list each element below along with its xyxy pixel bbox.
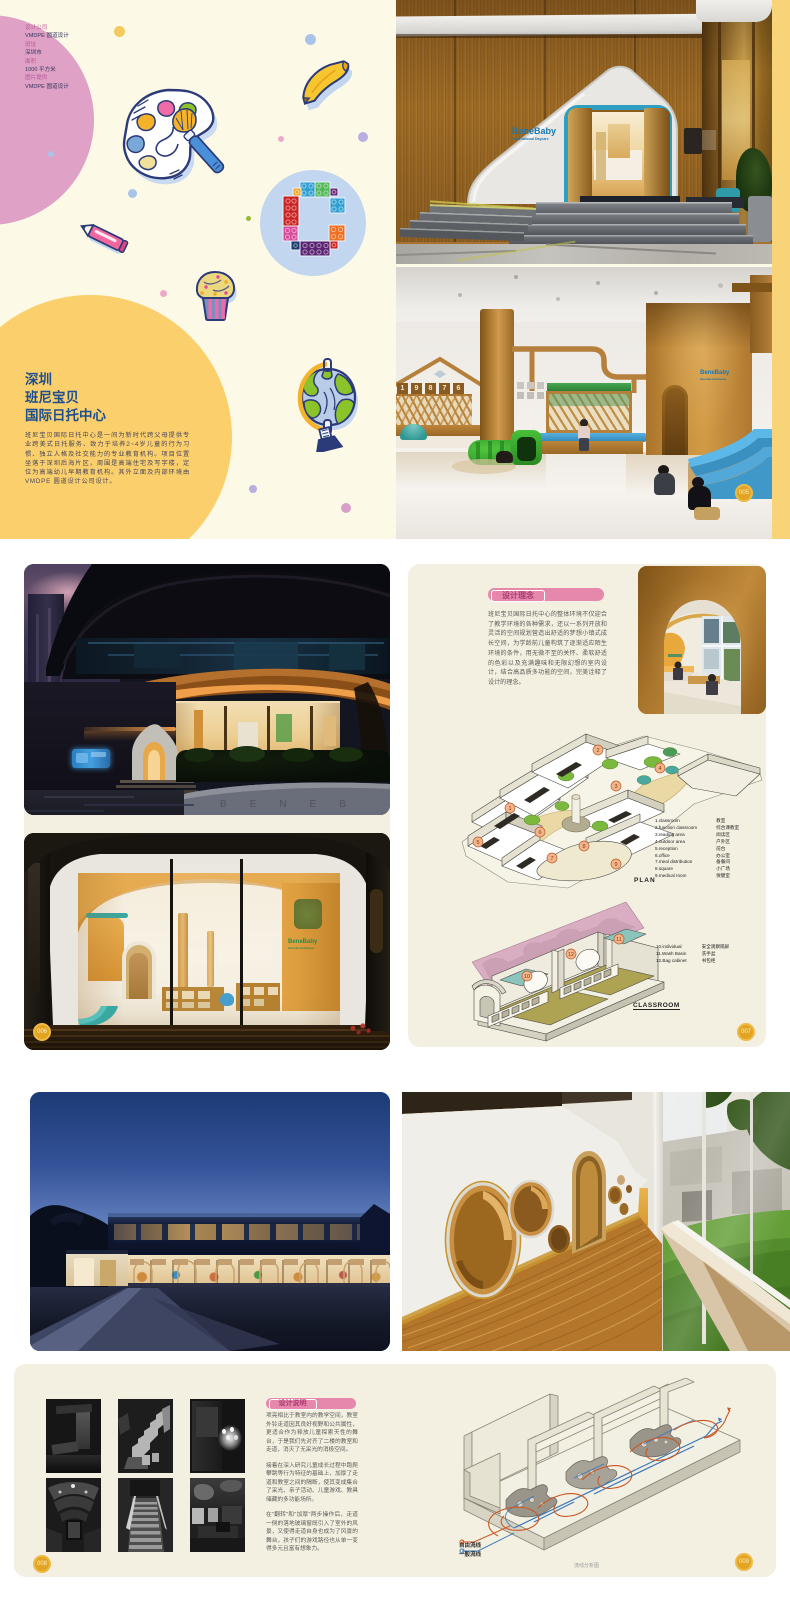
svg-text:10: 10 (524, 974, 530, 980)
svg-text:11: 11 (616, 937, 622, 943)
svg-text:2: 2 (596, 748, 599, 754)
svg-text:9: 9 (614, 862, 617, 868)
svg-text:BENEB: BENEB (220, 799, 369, 810)
svg-text:7: 7 (550, 856, 553, 862)
svg-text:3: 3 (614, 784, 617, 790)
svg-text:6: 6 (538, 830, 541, 836)
svg-text:8: 8 (582, 844, 585, 850)
svg-text:5: 5 (476, 840, 479, 846)
svg-text:12: 12 (568, 952, 574, 958)
svg-text:1: 1 (508, 806, 511, 812)
svg-text:4: 4 (658, 766, 661, 772)
